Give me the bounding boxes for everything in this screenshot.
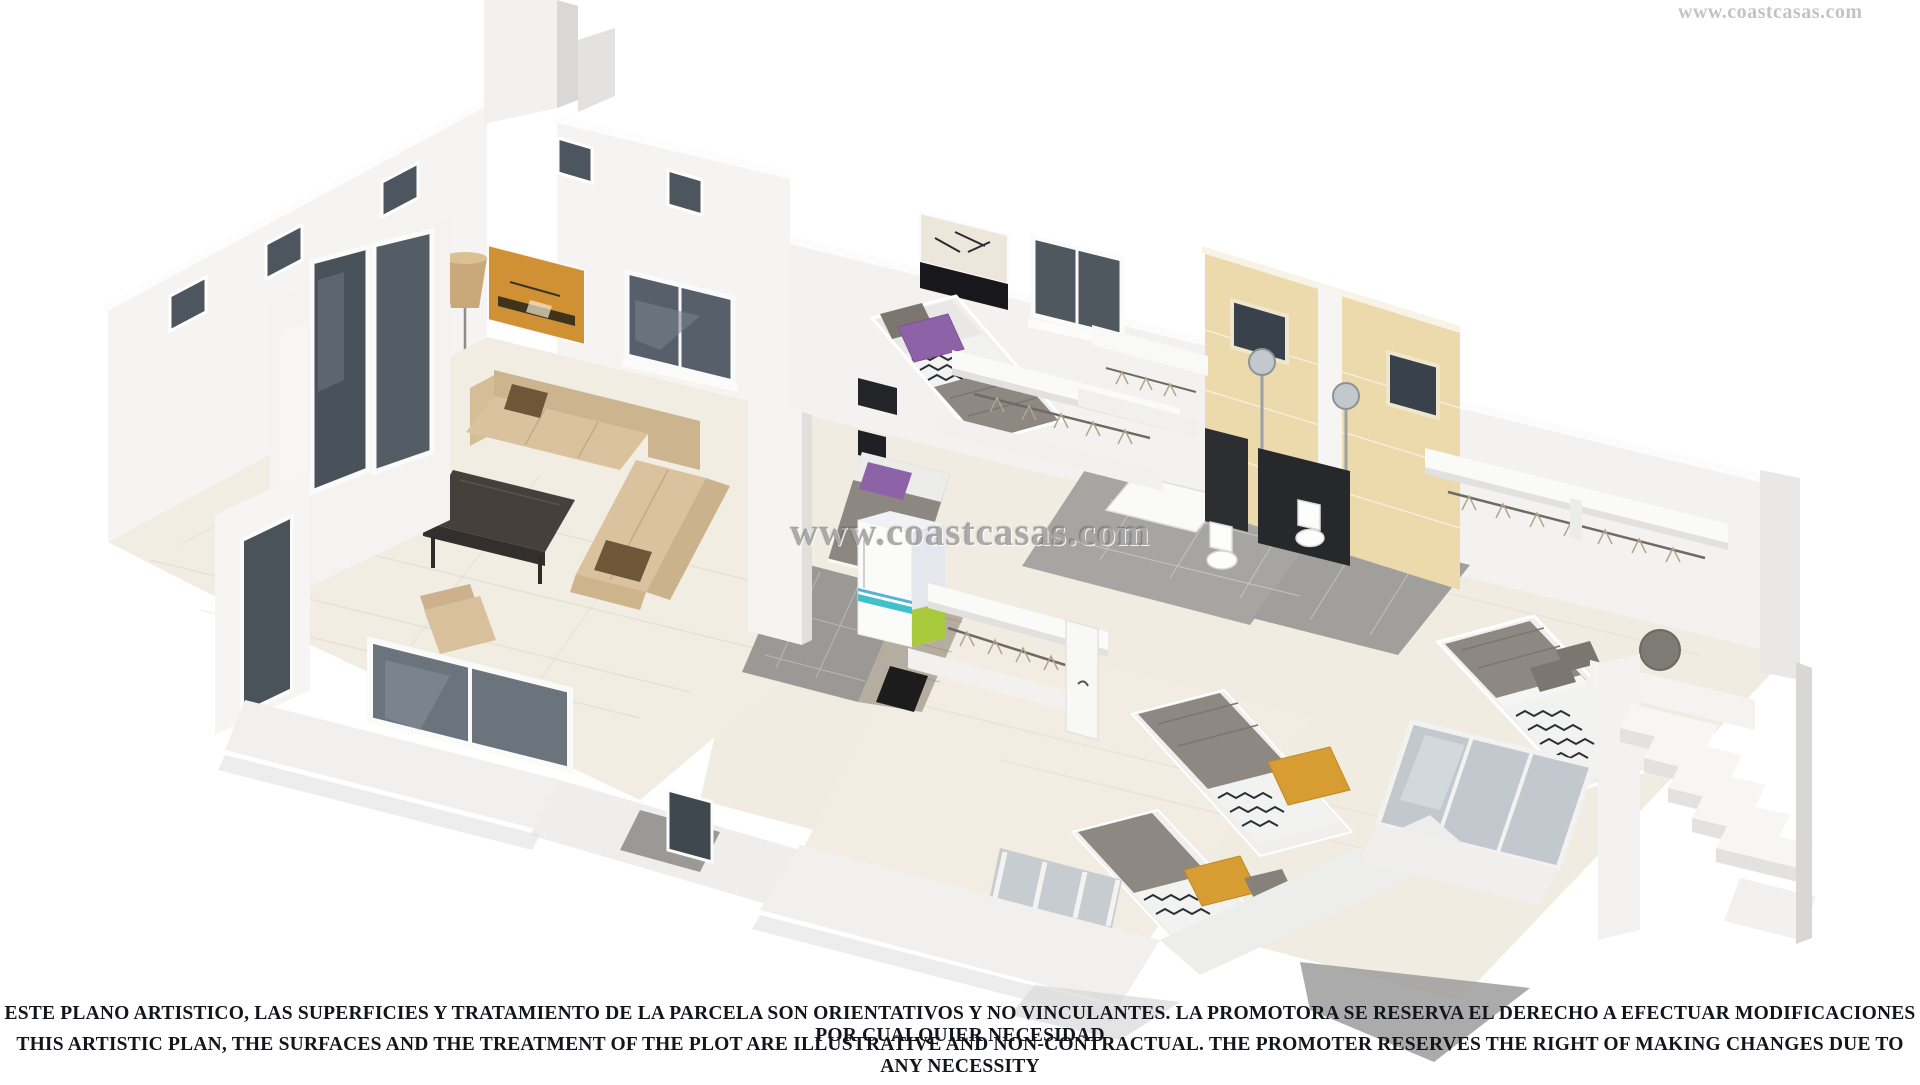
bedside-stool (1640, 630, 1680, 670)
chimney (484, 0, 615, 124)
toilet-2 (1296, 500, 1324, 547)
page: { "watermark": { "text": "www.coastcasas… (0, 0, 1920, 1080)
stairs (1590, 654, 1816, 944)
door-ajar (1066, 620, 1098, 740)
disclaimer-line-2: THIS ARTISTIC PLAN, THE SURFACES AND THE… (0, 1034, 1920, 1078)
vanity-mirror-1 (1205, 428, 1248, 532)
bath-window-2 (1388, 352, 1438, 418)
entry-wall (215, 470, 310, 735)
watermark-center: www.coastcasas.com (790, 510, 1130, 555)
watermark-top-right: www.coastcasas.com (1678, 1, 1918, 24)
toilet-1 (1207, 522, 1237, 569)
